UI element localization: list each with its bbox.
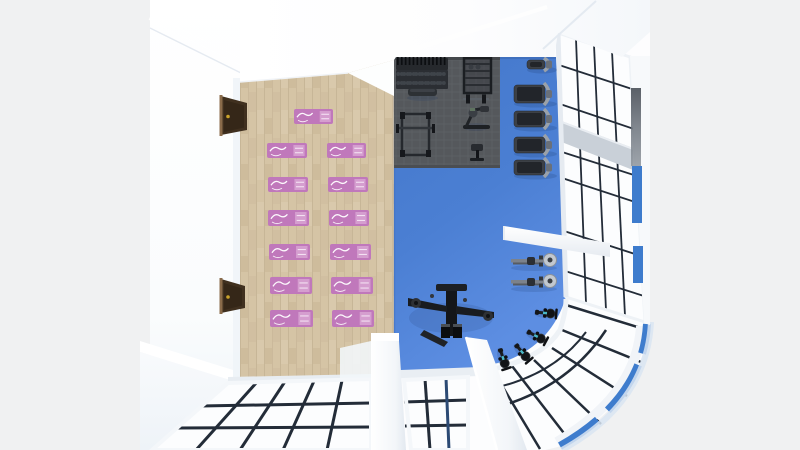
door-knob (226, 295, 230, 299)
yoga-mat[interactable] (328, 177, 368, 192)
yoga-mat[interactable] (332, 310, 374, 327)
flat-bench[interactable] (407, 88, 438, 101)
storage-rack[interactable] (464, 58, 491, 93)
yoga-mat[interactable] (331, 277, 373, 294)
yoga-mat[interactable] (294, 109, 333, 124)
dumbbell-rack[interactable] (396, 57, 448, 89)
glass-reflection (631, 88, 641, 166)
yoga-mat[interactable] (267, 143, 307, 158)
yoga-mat[interactable] (270, 277, 312, 294)
yoga-mat[interactable] (330, 244, 371, 260)
door-knob (226, 115, 230, 119)
gym-render (0, 0, 800, 450)
yoga-mat[interactable] (327, 143, 366, 158)
yoga-mat[interactable] (268, 210, 309, 226)
yoga-mat[interactable] (270, 310, 313, 327)
yoga-area-floor (240, 60, 394, 383)
yoga-mat[interactable] (268, 177, 308, 192)
yoga-mat[interactable] (329, 210, 369, 226)
right-window-wall (558, 33, 650, 325)
render-viewport[interactable] (0, 0, 800, 450)
yoga-mat[interactable] (269, 244, 310, 260)
